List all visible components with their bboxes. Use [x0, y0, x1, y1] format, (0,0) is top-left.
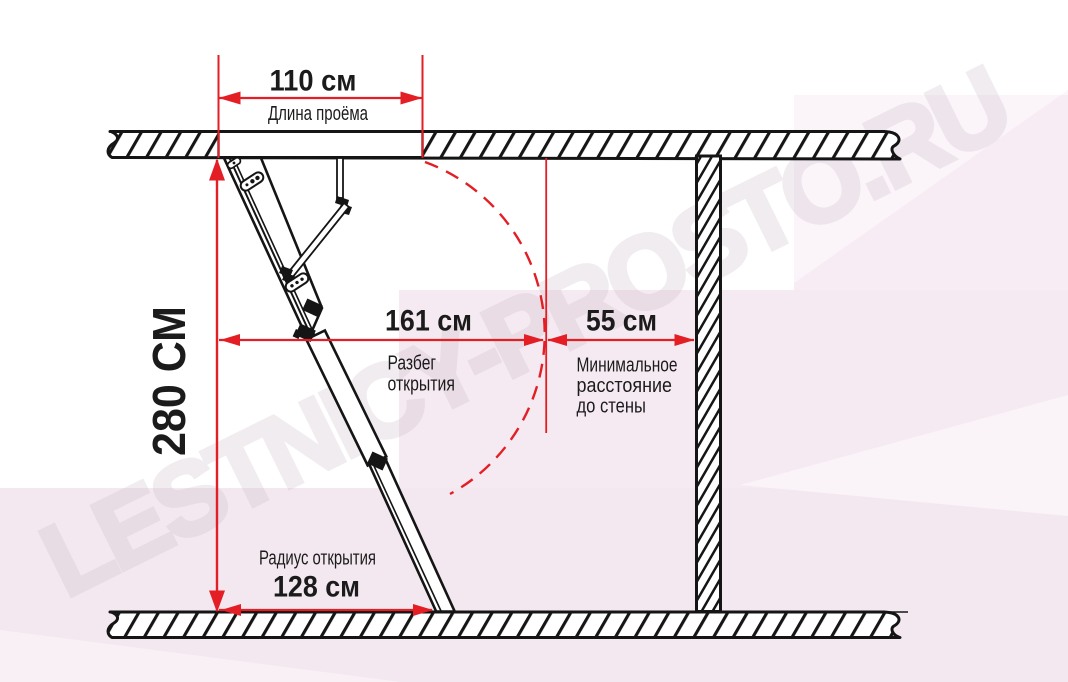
- svg-text:280 СМ: 280 СМ: [143, 306, 195, 456]
- svg-text:Минимальное: Минимальное: [577, 355, 678, 377]
- svg-text:128 см: 128 см: [273, 571, 360, 604]
- svg-text:55 см: 55 см: [586, 305, 657, 338]
- svg-text:161 см: 161 см: [385, 305, 472, 338]
- svg-text:открытия: открытия: [388, 374, 455, 396]
- svg-text:110 см: 110 см: [270, 65, 357, 98]
- svg-text:Радиус открытия: Радиус открытия: [259, 548, 376, 570]
- svg-text:расстояние: расстояние: [577, 375, 673, 397]
- svg-text:Разбег: Разбег: [388, 353, 437, 375]
- svg-text:до стены: до стены: [577, 396, 646, 418]
- svg-text:Длина проёма: Длина проёма: [268, 103, 369, 125]
